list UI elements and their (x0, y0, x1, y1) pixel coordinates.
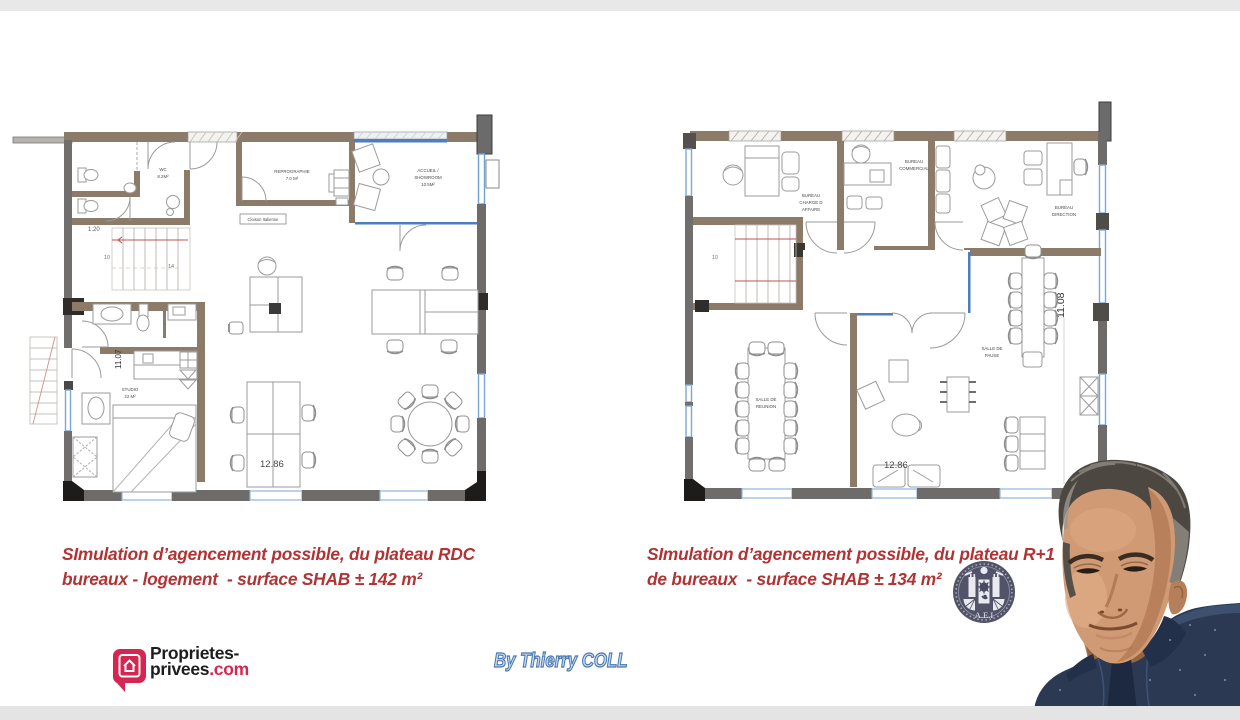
svg-text:1.20: 1.20 (88, 227, 100, 233)
svg-text:REUNION: REUNION (756, 404, 776, 409)
svg-text:PAUSE: PAUSE (985, 353, 1000, 358)
svg-text:STUDIO: STUDIO (122, 387, 139, 392)
svg-text:ACCUEIL /: ACCUEIL / (417, 168, 439, 173)
svg-text:CHARGE D: CHARGE D (799, 200, 822, 205)
svg-text:A.E.I: A.E.I (975, 610, 994, 620)
svg-text:Cloison Italienne: Cloison Italienne (248, 217, 280, 222)
svg-text:DIRECTION: DIRECTION (1052, 212, 1076, 217)
svg-text:10: 10 (712, 255, 718, 261)
svg-text:REPROGRAPHIE: REPROGRAPHIE (274, 169, 309, 174)
svg-text:12.86: 12.86 (884, 460, 908, 471)
svg-text:BUREAU: BUREAU (905, 159, 923, 164)
svg-text:8.2M²: 8.2M² (157, 174, 169, 179)
svg-text:AFFAIRE: AFFAIRE (802, 207, 820, 212)
svg-text:SHOWROOM: SHOWROOM (414, 175, 442, 180)
svg-text:SALLE DE: SALLE DE (756, 397, 777, 402)
svg-text:BUREAU: BUREAU (802, 193, 820, 198)
svg-text:10.5M²: 10.5M² (421, 182, 435, 187)
svg-text:10: 10 (104, 255, 110, 261)
svg-text:7.0 M²: 7.0 M² (286, 176, 299, 181)
svg-text:11.07: 11.07 (114, 349, 123, 369)
svg-text:14: 14 (168, 264, 174, 270)
svg-text:BUREAU: BUREAU (1055, 205, 1073, 210)
svg-text:12.86: 12.86 (260, 459, 284, 470)
svg-text:22 M²: 22 M² (124, 394, 136, 399)
svg-text:COMMERCIAL: COMMERCIAL (899, 166, 929, 171)
svg-text:WC: WC (159, 167, 166, 172)
svg-text:SALLE DE: SALLE DE (982, 346, 1003, 351)
